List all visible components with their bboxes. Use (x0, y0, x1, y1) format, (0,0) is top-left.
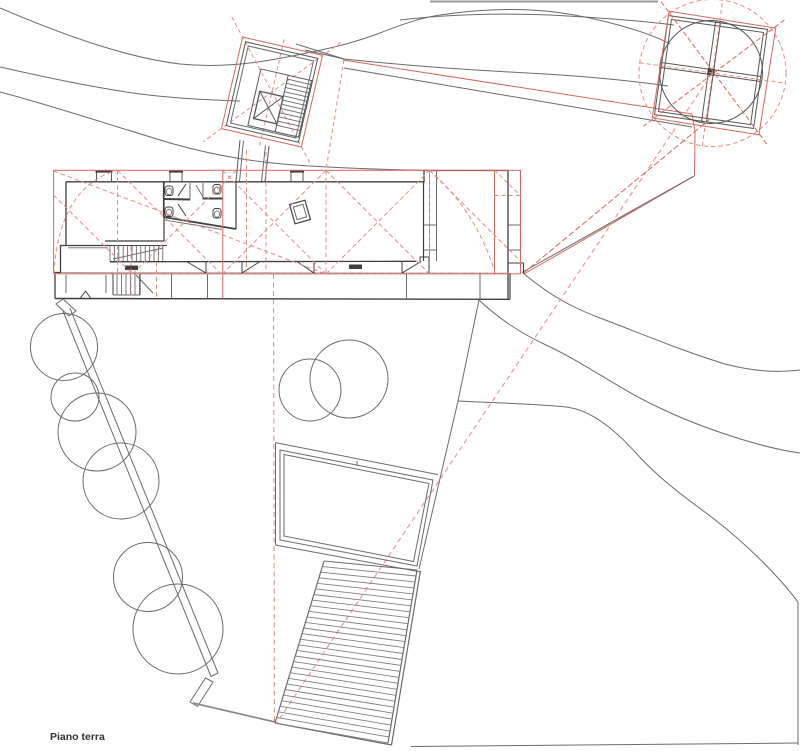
svg-text:Piano terra: Piano terra (50, 731, 105, 743)
